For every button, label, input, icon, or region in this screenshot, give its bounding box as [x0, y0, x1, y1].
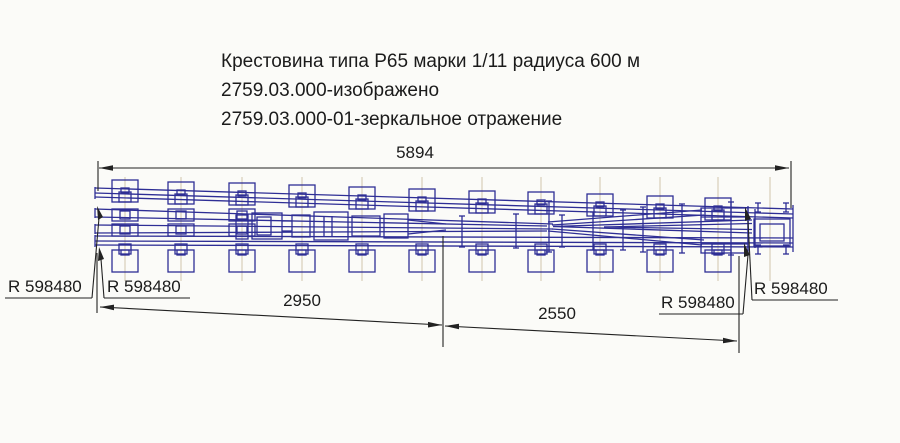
technical-drawing-page: Крестовина типа Р65 марки 1/11 радиуса 6…: [0, 0, 900, 443]
rail-fitting: [292, 215, 310, 237]
rail-line: [95, 231, 547, 233]
rail-line: [95, 245, 793, 247]
radius-label-right: R 598480: [661, 293, 735, 313]
dimension-line: [445, 326, 737, 341]
rail-line: [95, 197, 793, 218]
radius-label-left: R 598480: [107, 277, 181, 297]
rail-line: [95, 241, 793, 243]
drawing-title: Крестовина типа Р65 марки 1/11 радиуса 6…: [221, 47, 640, 134]
dimension-arrowhead: [100, 305, 114, 311]
leader-line: [101, 259, 104, 298]
rails-and-blocks: [95, 187, 793, 255]
radius-label-far-left: R 598480: [8, 277, 82, 297]
dimension-lines: [97, 161, 791, 353]
leader-arrowhead: [97, 206, 103, 220]
rail-line: [95, 236, 793, 238]
leader-arrowhead: [98, 247, 104, 261]
rail-line: [95, 188, 793, 209]
title-line-2: 2759.03.000-изображено: [221, 76, 640, 105]
dimension-arrowhead: [428, 322, 442, 328]
rail-fitting: [384, 214, 408, 238]
rail-fitting: [352, 216, 380, 236]
title-line-1: Крестовина типа Р65 марки 1/11 радиуса 6…: [221, 47, 640, 76]
leader-line: [743, 255, 748, 314]
dimension-arrowhead: [775, 165, 789, 171]
title-line-3: 2759.03.000-01-зеркальное отражение: [221, 105, 640, 134]
dim-left-span-label: 2950: [262, 291, 342, 311]
radius-label-far-right: R 598480: [754, 279, 828, 299]
dim-right-span-label: 2550: [517, 304, 597, 324]
dim-overall-label: 5894: [375, 143, 455, 163]
dimension-arrowhead: [99, 165, 113, 171]
